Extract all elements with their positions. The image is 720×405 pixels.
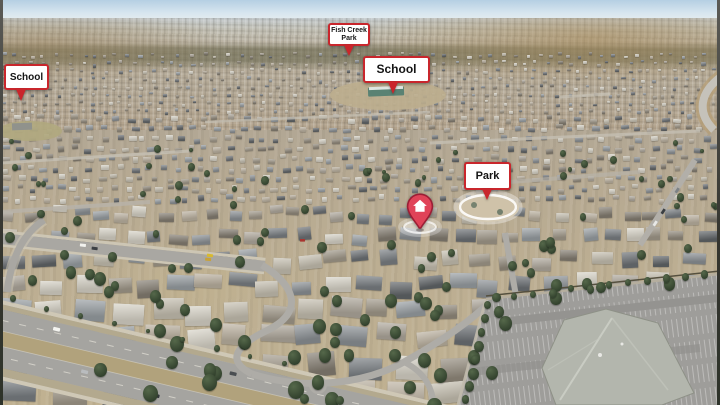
tree [427,252,436,262]
tree [154,324,167,338]
tree [175,196,181,203]
tree [202,374,217,391]
tree [232,186,237,192]
tree [415,179,422,187]
tree [471,355,480,365]
tree [94,272,106,286]
tree [60,250,69,260]
tree [436,157,441,163]
tree [427,398,442,405]
callout-label: Park [476,170,500,182]
tree [684,244,693,254]
tree [625,279,631,286]
tree [682,273,689,281]
tree [180,337,185,342]
tree [674,203,680,210]
tree [677,193,684,202]
tree [448,249,455,258]
tree [28,275,37,286]
tree [317,242,326,253]
tree [44,306,49,312]
tree [382,173,390,182]
tree [387,240,396,250]
tree [522,259,529,267]
tree [66,266,77,278]
callout-box: School [4,64,49,90]
tree [146,329,150,333]
callout-label-line2: Park [341,35,356,43]
tree [336,396,344,405]
tree [367,168,372,173]
tree [312,375,324,389]
tree [78,313,83,319]
callout-fish-creek-park: Fish Creek Park [328,23,370,46]
tree [530,291,536,298]
tree [637,250,646,260]
tree [240,336,251,349]
tree [587,285,594,294]
tree [5,232,15,243]
tree [288,350,301,365]
callout-pointer [344,45,354,56]
home-location-pin [406,193,434,230]
tree [180,304,190,316]
tree [478,328,486,337]
tree [462,395,470,404]
tree [104,286,114,298]
tree [61,227,68,235]
tree [360,314,371,327]
tree [300,394,309,404]
tree [430,310,440,321]
tree [319,348,332,363]
tree [484,301,491,309]
tree [301,205,309,214]
tree [248,354,252,359]
tree [667,176,673,182]
tree [146,163,152,169]
tree [681,216,687,223]
tree [560,172,567,180]
tree [644,277,651,285]
tree [499,316,512,330]
tree [143,385,158,403]
tree [210,318,222,332]
tree [25,152,31,159]
tree [418,353,431,368]
callout-school-left: School [4,64,49,90]
tree [330,337,340,349]
callout-pointer [388,82,398,94]
tree [204,170,211,178]
tree [385,294,397,308]
tree [494,306,504,318]
tree [560,150,566,157]
tree [348,212,355,220]
tree [332,295,342,306]
tree [481,314,489,323]
tree [175,181,183,190]
callout-school-center: School [363,56,430,83]
callout-park: Park [464,162,511,190]
tree [12,164,18,171]
tree [465,381,474,392]
tree [235,256,245,268]
tree [511,293,517,300]
tree [233,235,242,245]
tree [154,145,161,153]
tree [261,176,269,185]
tree [418,264,426,273]
tree [9,139,14,144]
tree [73,216,82,227]
callout-label: School [376,63,416,76]
tree [468,368,479,380]
tree [166,356,178,370]
tree [492,293,501,303]
callout-pointer [16,89,26,101]
tree [257,237,265,246]
tree [112,321,117,326]
callout-box: Fish Creek Park [328,23,370,46]
tree [37,210,44,218]
tree [639,176,644,182]
tree [168,264,176,273]
tree [580,213,587,221]
callout-box: Park [464,162,511,190]
tree [188,163,195,171]
trees-layer [0,0,720,405]
tree [404,381,416,395]
tree [422,175,426,180]
tree [673,140,678,146]
tree [214,345,220,352]
tree [330,323,342,336]
tree [658,180,665,188]
tree [700,149,704,154]
tree [390,326,401,339]
tree [546,237,556,248]
photo-edge-left [0,0,3,405]
tree [282,361,287,367]
tree [442,282,451,292]
tree [140,191,146,197]
tree [581,160,588,168]
callout-label-line1: Fish Creek [331,27,367,35]
callout-label: School [10,72,43,83]
tree [94,363,107,377]
tree [596,282,606,293]
aerial-photo: School Fish Creek Park School Park [0,0,720,405]
tree [434,368,447,383]
tree [261,228,269,237]
tree [344,349,355,361]
tree [313,319,326,334]
tree [420,297,432,311]
callout-box: School [363,56,430,83]
tree [150,290,161,303]
tree [474,341,484,352]
tree [320,286,329,297]
tree [230,201,237,209]
tree [568,167,573,173]
tree [610,156,617,165]
tree [527,268,535,278]
tree [606,281,612,288]
tree [508,261,517,272]
callout-pointer [482,189,492,200]
tree [10,295,16,302]
tree [453,150,458,155]
tree [184,263,193,273]
pin-graphic [406,193,434,230]
tree [153,230,160,238]
tree [41,181,46,187]
tree [189,148,193,152]
tree [701,270,708,278]
tree [389,349,401,362]
tree [108,252,117,262]
tree [568,285,574,292]
tree [486,366,498,380]
